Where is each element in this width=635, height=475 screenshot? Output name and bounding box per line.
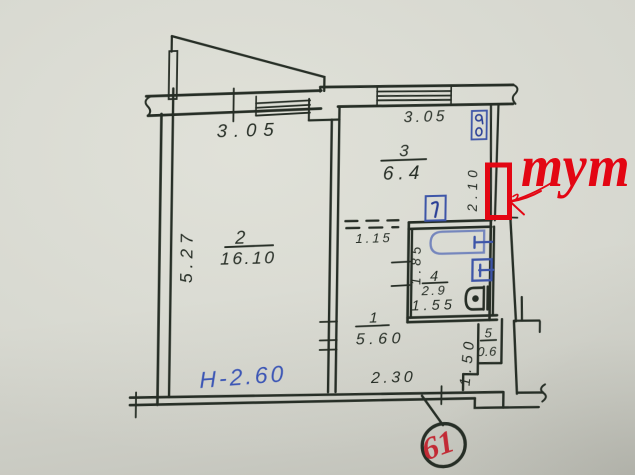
svg-text:1.15: 1.15 <box>355 230 393 246</box>
svg-text:61: 61 <box>417 423 458 468</box>
svg-text:5.60: 5.60 <box>356 330 405 348</box>
svg-text:3.05: 3.05 <box>217 119 281 142</box>
svg-text:Н-2.60: Н-2.60 <box>199 360 287 393</box>
svg-text:16.10: 16.10 <box>220 247 277 269</box>
svg-text:1.55: 1.55 <box>411 297 455 314</box>
svg-text:6.4: 6.4 <box>383 163 425 185</box>
svg-text:1: 1 <box>369 309 378 326</box>
svg-text:2.9: 2.9 <box>421 283 448 299</box>
svg-text:0.6: 0.6 <box>477 344 497 360</box>
svg-text:5: 5 <box>485 325 493 340</box>
svg-text:3: 3 <box>399 141 409 160</box>
svg-text:2: 2 <box>234 228 245 248</box>
svg-text:1.85: 1.85 <box>408 243 424 286</box>
svg-text:3.05: 3.05 <box>404 108 448 126</box>
svg-text:тут: тут <box>521 134 631 200</box>
svg-text:5.27: 5.27 <box>176 229 197 284</box>
svg-text:2.30: 2.30 <box>370 369 416 387</box>
svg-text:2.10: 2.10 <box>465 165 481 213</box>
svg-text:1.50: 1.50 <box>457 336 479 386</box>
